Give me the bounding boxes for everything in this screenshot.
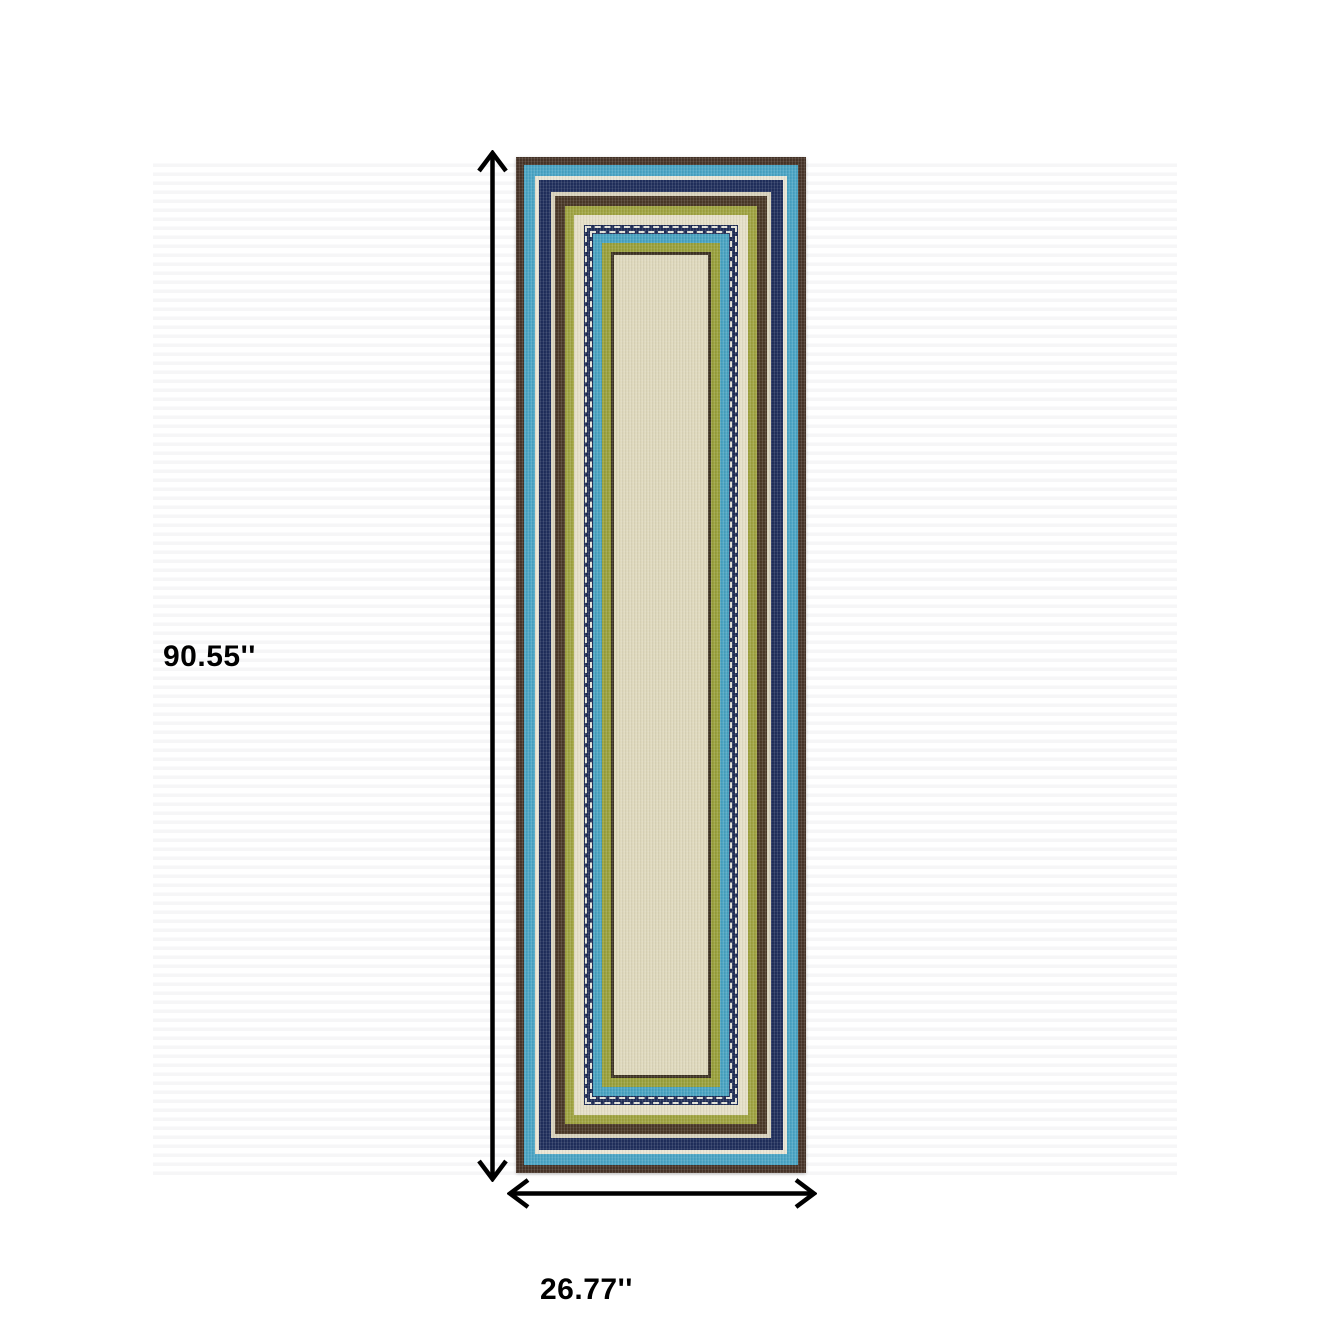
brown-stripe [555,196,767,1134]
product-dimension-diagram: 90.55'' 26.77'' [0,0,1331,1331]
navy-dotted-stripe [584,225,738,1105]
sky-blue-stripe [524,165,798,1165]
height-dimension-arrow [477,150,509,1182]
navy-stripe [539,180,783,1150]
ivory-stripe [535,176,787,1154]
height-dimension-label: 90.55'' [163,640,256,674]
dark-brown-line [611,252,711,1078]
outer-brown-border [516,157,806,1173]
ivory-stripe-inner [574,215,748,1115]
olive-stripe [565,206,757,1124]
rug-center-field [614,255,708,1075]
width-dimension-arrow [507,1178,817,1210]
sky-blue-stripe-inner [593,234,729,1096]
olive-stripe-inner [602,243,720,1087]
width-dimension-label: 26.77'' [540,1273,633,1307]
rug-image [516,157,806,1173]
ivory-thin-stripe [551,192,771,1138]
